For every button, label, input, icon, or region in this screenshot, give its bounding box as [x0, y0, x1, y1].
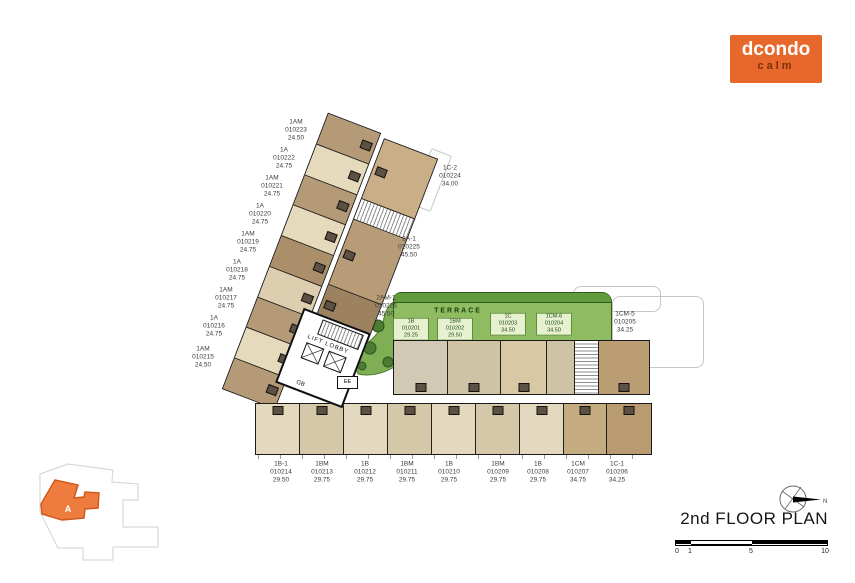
scale-bar-graphic	[675, 540, 828, 546]
unit-label: 2A-101022545.50	[398, 235, 420, 258]
unit-cell	[344, 404, 388, 454]
unit-label: 1B01021229.75	[354, 460, 376, 483]
bath-pod	[415, 383, 426, 392]
bath-pod	[348, 170, 361, 182]
ee-room-label: EE	[337, 376, 358, 389]
unit-cell	[300, 404, 344, 454]
building-a-label: A	[65, 504, 72, 514]
unit-cell	[547, 341, 575, 394]
unit-cell	[520, 404, 564, 454]
unit-label: 1AM01021924.75	[237, 230, 259, 253]
bath-pod	[619, 383, 630, 392]
bath-pod	[301, 292, 314, 304]
unit-label: 2AM-101022645.50	[375, 294, 397, 317]
scale-bar: 0 1 5 10	[675, 540, 828, 560]
bath-pod	[448, 406, 459, 415]
unit-cell	[476, 404, 520, 454]
unit-label: 1CM-501020534.25	[614, 310, 636, 333]
bath-pod	[336, 200, 349, 212]
unit-plate: 1CM-6 010204 34.50	[536, 313, 572, 336]
bath-pod	[518, 383, 529, 392]
unit-plate: 1C 010203 34.50	[490, 313, 526, 336]
unit-cell	[432, 404, 476, 454]
unit-label: 1AM01021724.75	[215, 286, 237, 309]
scale-tick: 0	[675, 548, 679, 555]
bath-pod	[265, 384, 278, 396]
unit-plate: 1B 010201 29.25	[393, 318, 429, 341]
bath-pod	[375, 166, 388, 178]
north-label: N	[823, 499, 827, 505]
stairwell	[575, 341, 599, 394]
unit-cell	[394, 341, 448, 394]
unit-cell	[501, 341, 547, 394]
brand-name: dcondo	[730, 40, 822, 60]
bath-pod	[624, 406, 635, 415]
unit-plate: 1BM 010202 29.50	[437, 318, 473, 341]
unit-label: 1AM01021524.50	[192, 345, 214, 368]
bath-pod	[316, 406, 327, 415]
unit-label: 1A01021624.75	[203, 314, 225, 337]
terrace-planter-band	[394, 293, 611, 303]
unit-cell	[388, 404, 432, 454]
scale-tick: 10	[821, 548, 829, 555]
bath-pod	[312, 262, 325, 274]
building-a-footprint	[41, 480, 99, 520]
floor-plan-canvas: dcondo calm TERRACE 1B 010201 29.25 1BM …	[0, 0, 855, 583]
unit-label: 1B01021029.75	[438, 460, 460, 483]
unit-label: 1CM01020734.75	[567, 460, 589, 483]
bath-pod	[469, 383, 480, 392]
unit-cell	[256, 404, 300, 454]
bath-pod	[492, 406, 503, 415]
unit-label: 1C-101020634.25	[606, 460, 628, 483]
unit-cell	[448, 341, 501, 394]
balcony-dividers	[258, 455, 649, 459]
unit-label: 1B-101021429.50	[270, 460, 292, 483]
plan-title: 2nd FLOOR PLAN	[668, 509, 828, 529]
middle-strip	[393, 340, 650, 395]
brand-subname: calm	[730, 60, 822, 72]
unit-cell	[564, 404, 607, 454]
bath-pod	[272, 406, 283, 415]
unit-label: 1A01021824.75	[226, 258, 248, 281]
unit-label: 1BM01021329.75	[311, 460, 333, 483]
terrace-title: TERRACE	[434, 308, 482, 315]
bath-pod	[360, 406, 371, 415]
unit-cell	[599, 341, 649, 394]
site-key-map: A	[28, 452, 168, 570]
unit-label: 1A01022224.75	[273, 146, 295, 169]
bath-pod	[343, 249, 356, 261]
brand-logo: dcondo calm	[730, 35, 822, 83]
bottom-strip	[255, 403, 652, 455]
bath-pod	[359, 139, 372, 151]
unit-label: 1A01022024.75	[249, 202, 271, 225]
unit-label: 1BM01020929.75	[487, 460, 509, 483]
unit-cell	[607, 404, 651, 454]
bath-pod	[324, 231, 337, 243]
scale-tick: 1	[688, 548, 692, 555]
bath-pod	[580, 406, 591, 415]
bath-pod	[536, 406, 547, 415]
bath-pod	[404, 406, 415, 415]
unit-label: 1AM01022324.50	[285, 118, 307, 141]
scale-tick: 5	[749, 548, 753, 555]
bath-pod	[323, 300, 336, 312]
unit-label: 1C-201022434.00	[439, 164, 461, 187]
unit-label: 1BM01021129.75	[396, 460, 417, 483]
unit-label: 1B01020829.75	[527, 460, 549, 483]
unit-label: 1AM01022124.75	[261, 174, 283, 197]
